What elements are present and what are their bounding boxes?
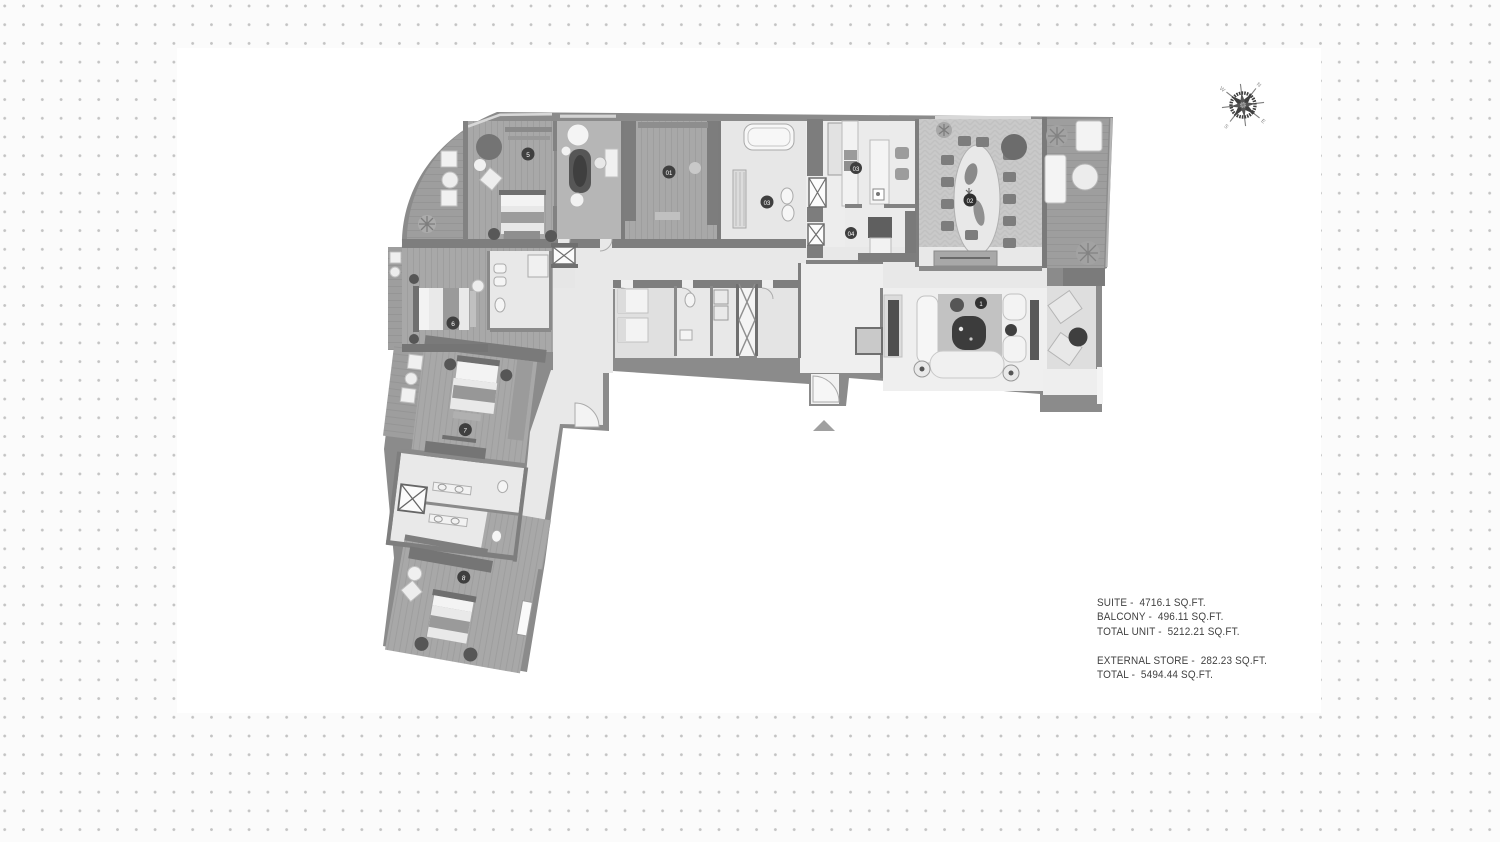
svg-text:S: S [1222, 124, 1229, 131]
svg-text:5: 5 [526, 152, 530, 159]
svg-text:N: N [1255, 82, 1262, 89]
svg-text:02: 02 [967, 199, 974, 205]
svg-text:04: 04 [848, 232, 855, 238]
svg-text:03: 03 [764, 201, 771, 207]
svg-text:E: E [1260, 118, 1267, 125]
svg-text:01: 01 [666, 171, 673, 177]
svg-text:W: W [1218, 86, 1226, 94]
svg-text:6: 6 [451, 321, 455, 328]
svg-text:03: 03 [853, 167, 860, 173]
